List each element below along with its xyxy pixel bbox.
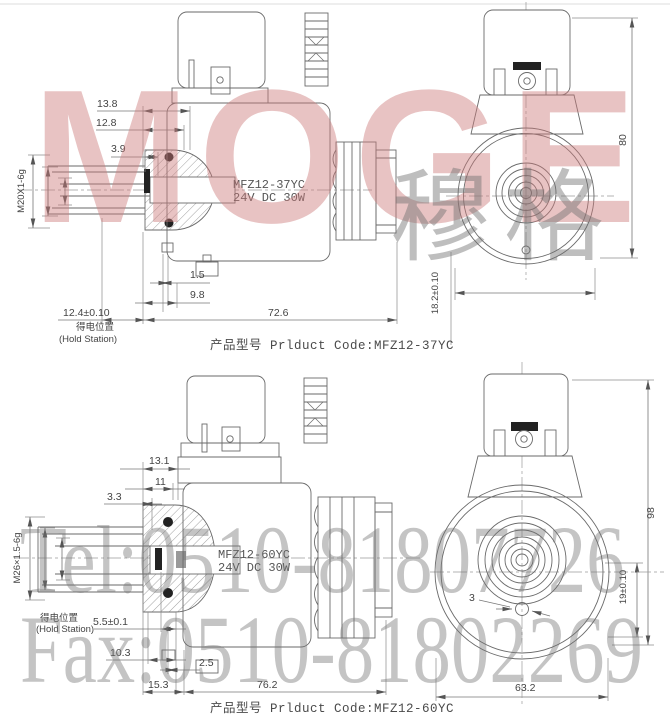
top-dimension-labels: 13.8 12.8 3.9 M20X1-6g 1.5 9.8 12.4±0.10…: [16, 98, 629, 353]
o-ring-bottom: [165, 219, 174, 228]
dim-label: 76.2: [257, 679, 278, 691]
bottom-front-view: [430, 362, 664, 706]
o-ring-top: [163, 517, 173, 527]
dim-label: 72.6: [268, 307, 289, 319]
thread-tube: [38, 527, 150, 592]
thread-label: M20X1-6g: [16, 169, 27, 213]
dim-label: 13.1: [149, 455, 170, 467]
seal-ring: [155, 548, 162, 570]
dim-label: 15.3: [148, 679, 169, 691]
cable-gland-nut: [304, 378, 327, 443]
dim-label: 11: [155, 476, 166, 488]
dim-label: 3.3: [107, 491, 122, 503]
retaining-nut: [333, 142, 396, 240]
model-code: MFZ12-37YC: [233, 178, 305, 192]
seal-ring: [144, 169, 150, 193]
thread-label: M26×1.5-6g: [12, 533, 23, 584]
dim-label: 12.8: [96, 117, 117, 129]
din-connector: [178, 376, 281, 483]
dim-label: 13.8: [97, 98, 118, 110]
hold-station-cn: 得电位置: [40, 612, 78, 624]
model-voltage: 24V DC 30W: [218, 561, 291, 575]
hold-station-en: (Hold Station): [59, 334, 117, 345]
o-ring-top: [165, 153, 174, 162]
drawing-canvas: 13.8 12.8 3.9 M20X1-6g 1.5 9.8 12.4±0.10…: [0, 0, 670, 721]
dim-label: 98: [645, 507, 657, 519]
dim-label: 9.8: [190, 289, 205, 301]
dim-label: 19±0.10: [618, 570, 629, 604]
model-voltage: 24V DC 30W: [233, 191, 306, 205]
dim-label: 80: [617, 134, 629, 146]
model-code: MFZ12-60YC: [218, 548, 290, 562]
dim-label: 2.5: [199, 657, 214, 669]
hold-station-cn: 得电位置: [76, 321, 114, 333]
dim-label: 63.2: [515, 682, 536, 694]
dim-label: 1.5: [190, 269, 205, 281]
cable-gland-nut: [305, 13, 328, 86]
dim-label: 12.4±0.10: [63, 307, 110, 319]
technical-drawing-page: 13.8 12.8 3.9 M20X1-6g 1.5 9.8 12.4±0.10…: [0, 0, 670, 721]
o-ring-bottom: [163, 588, 173, 598]
retaining-nut: [315, 497, 393, 638]
dim-label: 3: [469, 592, 475, 604]
connector-cap: [511, 422, 538, 431]
hold-station-en: (Hold Station): [36, 624, 94, 635]
product-caption: 产品型号 Prlduct Code:MFZ12-60YC: [210, 701, 454, 716]
din-connector: [172, 12, 268, 103]
dim-label: 3.9: [111, 143, 126, 155]
dim-label: 5.5±0.1: [93, 616, 128, 628]
top-side-view: [18, 12, 396, 276]
dim-label: 18.2±0.10: [430, 272, 441, 314]
product-caption: 产品型号 Prlduct Code:MFZ12-37YC: [210, 338, 454, 353]
dim-label: 10.3: [110, 647, 131, 659]
connector-cap: [513, 62, 541, 70]
top-front-view: [446, 2, 614, 280]
